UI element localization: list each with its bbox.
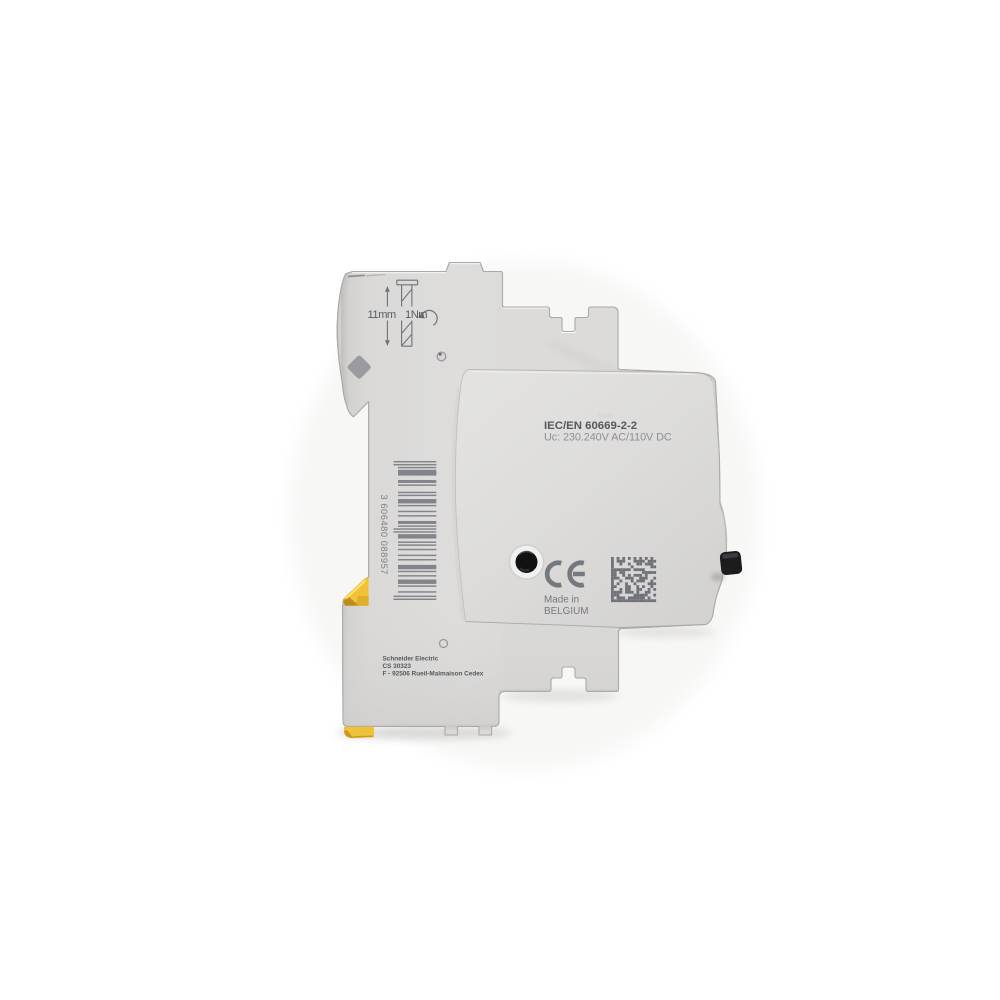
svg-text:Made in: Made in bbox=[544, 595, 579, 606]
svg-text:BELGIUM: BELGIUM bbox=[544, 606, 588, 617]
svg-text:F - 92506 Rueil-Malmaison Cede: F - 92506 Rueil-Malmaison Cedex bbox=[383, 671, 484, 678]
svg-text:CS 30323: CS 30323 bbox=[383, 663, 412, 670]
svg-text:11mm: 11mm bbox=[368, 309, 396, 321]
svg-text:Uc: 230.240V AC/110V DC: Uc: 230.240V AC/110V DC bbox=[544, 432, 672, 444]
svg-text:Schneider Electric: Schneider Electric bbox=[383, 655, 439, 662]
svg-text:IEC/EN 60669-2-2: IEC/EN 60669-2-2 bbox=[544, 420, 637, 432]
svg-text:B546: B546 bbox=[598, 413, 614, 420]
svg-text:3 606480 088957: 3 606480 088957 bbox=[379, 495, 390, 576]
svg-text:1Nm: 1Nm bbox=[405, 309, 427, 321]
